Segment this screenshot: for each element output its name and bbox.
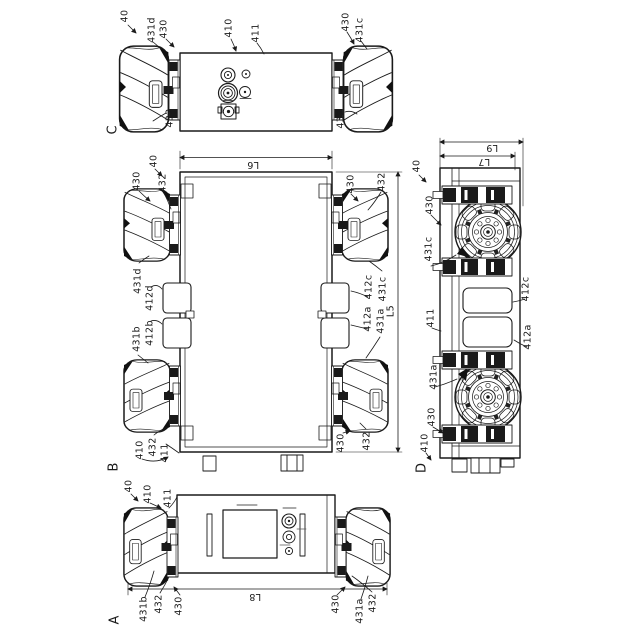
ref-411-view-d: 411 bbox=[426, 308, 436, 327]
rear-feet-sideview bbox=[452, 458, 514, 473]
mecanum-wheel-b-tl bbox=[124, 189, 170, 261]
ref-432-view-b-br: 432 bbox=[362, 431, 372, 450]
ref-430-view-c-right: 430 bbox=[341, 12, 351, 31]
ref-410-view-b: 410 bbox=[135, 440, 145, 459]
view-d-drawing bbox=[433, 168, 521, 473]
view-letter-d: D bbox=[416, 463, 429, 473]
view-letter-a: A bbox=[109, 616, 122, 625]
ref-412a-view-d: 412a bbox=[523, 324, 533, 350]
ref-431a-view-a: 431a bbox=[355, 598, 365, 624]
ref-431b-view-b: 431b bbox=[132, 326, 142, 352]
mecanum-wheel-c-right bbox=[344, 46, 393, 132]
mecanum-wheel-b-bl bbox=[124, 360, 170, 432]
ref-40-view-b: 40 bbox=[149, 155, 159, 168]
dim-l8: L8 bbox=[249, 591, 261, 601]
ref-412c-view-d: 412c bbox=[521, 277, 531, 302]
side-box-412c-sideview bbox=[463, 288, 512, 313]
side-box-412a bbox=[321, 318, 349, 348]
ref-432-view-b-tr: 432 bbox=[377, 172, 387, 191]
side-box-412d bbox=[163, 283, 191, 313]
mecanum-wheel-c-left bbox=[120, 46, 169, 132]
ref-411-view-a: 411 bbox=[163, 488, 173, 507]
view-a-drawing bbox=[124, 495, 390, 586]
technical-drawing bbox=[0, 0, 640, 640]
axle-mount-row-1 bbox=[433, 186, 512, 204]
side-box-412c bbox=[321, 283, 349, 313]
ref-411-view-c: 411 bbox=[251, 23, 261, 42]
view-letter-c: C bbox=[107, 125, 120, 134]
ref-430-view-d-bottom: 430 bbox=[427, 407, 437, 426]
ref-431d-view-b: 431d bbox=[133, 268, 143, 294]
ref-430-view-d-top: 430 bbox=[425, 195, 435, 214]
ref-430-view-b-tr: 430 bbox=[346, 174, 356, 193]
ref-40-view-d: 40 bbox=[412, 160, 422, 173]
ref-412d-view-b: 412d bbox=[145, 285, 155, 311]
ref-411-view-b: 411 bbox=[160, 443, 170, 462]
rear-feet bbox=[203, 455, 303, 471]
ref-432-view-a-left: 432 bbox=[154, 594, 164, 613]
ref-431c-view-b: 431c bbox=[378, 277, 388, 302]
side-box-412a-sideview bbox=[463, 317, 512, 347]
mecanum-wheel-b-tr bbox=[342, 189, 388, 261]
ref-431c-view-d: 431c bbox=[424, 237, 434, 262]
axle-mount-row-3 bbox=[433, 351, 512, 369]
ref-430-view-a-left: 430 bbox=[174, 596, 184, 615]
axle-mount-row-2 bbox=[433, 258, 512, 276]
dim-l9: L9 bbox=[486, 142, 498, 152]
ref-432-view-c-left: 432 bbox=[165, 108, 175, 127]
mecanum-wheel-b-br bbox=[342, 360, 388, 432]
ref-40-view-c: 40 bbox=[120, 10, 130, 23]
ref-432-view-a-right: 432 bbox=[368, 593, 378, 612]
view-b-drawing bbox=[124, 172, 388, 471]
ref-430-view-c-left: 430 bbox=[159, 19, 169, 38]
ref-432-view-b-tl: 432 bbox=[158, 173, 168, 192]
ref-431c-view-c: 431c bbox=[355, 18, 365, 43]
ref-431b-view-a: 431b bbox=[139, 596, 149, 622]
ref-410-view-d: 410 bbox=[420, 433, 430, 452]
ref-430-view-b-tl: 430 bbox=[132, 171, 142, 190]
ref-432-view-b-bl: 432 bbox=[148, 437, 158, 456]
ref-412a-view-b: 412a bbox=[363, 306, 373, 332]
ref-40-view-a: 40 bbox=[124, 480, 134, 493]
ref-412b-view-b: 412b bbox=[145, 320, 155, 346]
ref-430-view-b-br: 430 bbox=[336, 433, 346, 452]
axle-mount-row-4 bbox=[433, 425, 512, 443]
dim-l6: L6 bbox=[247, 159, 259, 169]
ref-430-view-a-right: 430 bbox=[331, 594, 341, 613]
ref-412c-view-b: 412c bbox=[364, 275, 374, 300]
view-c-drawing bbox=[120, 46, 393, 132]
ref-431a-view-d: 431a bbox=[429, 364, 439, 390]
side-box-412b bbox=[163, 318, 191, 348]
mecanum-wheel-a-left bbox=[124, 508, 168, 586]
mecanum-wheel-a-right bbox=[346, 508, 390, 586]
ref-410-view-a: 410 bbox=[143, 484, 153, 503]
ref-431d-view-c: 431d bbox=[147, 17, 157, 43]
view-letter-b: B bbox=[108, 463, 121, 472]
patent-figure-sheet: 40431d430410411430431c432432C40430432L64… bbox=[0, 0, 640, 640]
ref-410-view-c: 410 bbox=[224, 18, 234, 37]
ref-432-view-c-right: 432 bbox=[336, 109, 346, 128]
dim-l5: L5 bbox=[386, 305, 396, 317]
dim-l7: L7 bbox=[478, 156, 490, 166]
